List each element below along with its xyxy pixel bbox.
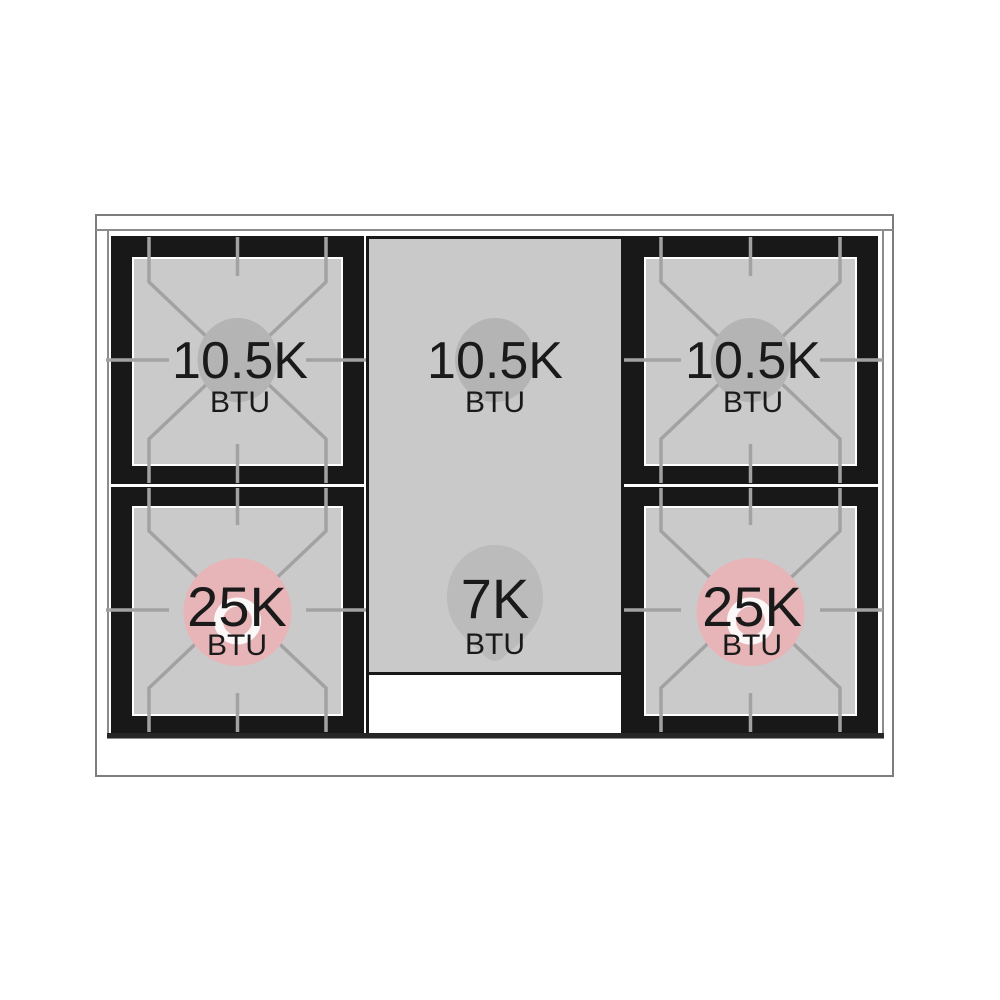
burner-btu-unit: BTU (465, 388, 525, 418)
burner-btu-value: 10.5K (172, 335, 308, 387)
cooktop-diagram: 10.5K BTU 10.5K BTU 10.5K BTU 25K BTU 7K… (0, 0, 1000, 1000)
cooktop-front-edge (107, 733, 884, 738)
burner-btu-unit: BTU (210, 388, 270, 418)
griddle-front-panel (366, 675, 624, 733)
burner-btu-value: 25K (702, 579, 802, 635)
burner-btu-value: 25K (187, 579, 287, 635)
burner-btu-value: 10.5K (685, 335, 821, 387)
burner-btu-unit: BTU (207, 631, 267, 661)
burner-btu-unit: BTU (465, 630, 525, 660)
burner-btu-unit: BTU (723, 388, 783, 418)
burner-btu-value: 10.5K (427, 335, 563, 387)
burner-btu-unit: BTU (722, 631, 782, 661)
burner-btu-value: 7K (461, 571, 530, 627)
